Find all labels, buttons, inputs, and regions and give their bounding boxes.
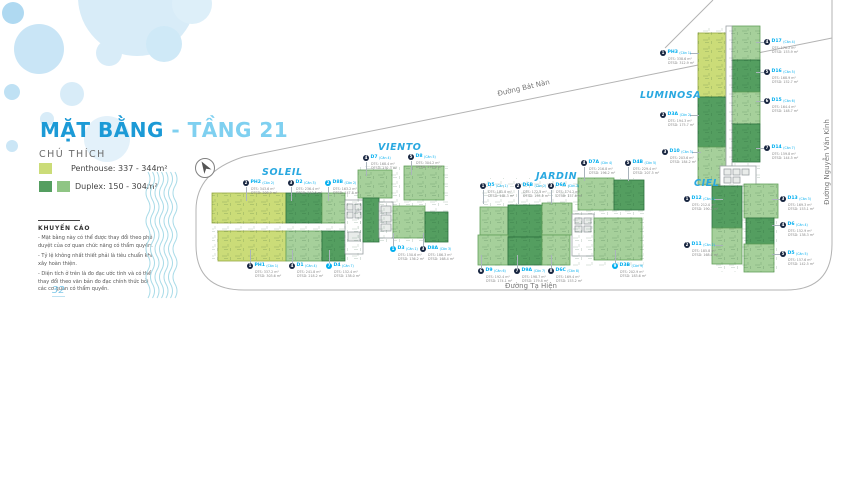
unit-label-soleil-d4: 7D4(Căn 7)DTS: 152.4 m²DTSD: 138.0 m² — [326, 263, 366, 279]
unit-area-net: DTSD: 207.5 m² — [633, 171, 665, 175]
unit-area-net: DTSD: 138.0 m² — [334, 274, 366, 278]
street-label-nguyen-van-kinh: Đường Nguyễn Văn Kỉnh — [823, 102, 831, 222]
unit-number-badge: 4 — [581, 160, 587, 166]
unit-variant: (Căn 7) — [342, 264, 354, 268]
unit-area-net: DTSD: 144.5 m² — [772, 156, 804, 160]
unit-label-soleil-ph1: 1PH1(Căn 1)DTS: 337.2 m²DTSD: 303.6 m² — [247, 263, 287, 279]
unit-code: D12 — [692, 196, 702, 202]
unit-variant: (Căn 3) — [681, 150, 693, 154]
unit-variant: (Căn 9) — [632, 264, 644, 268]
unit-code: D11 — [692, 242, 702, 248]
unit-number-badge: 7 — [514, 268, 520, 274]
unit-area-net: DTSD: 303.6 m² — [255, 274, 287, 278]
unit-code: PH1 — [255, 263, 265, 269]
unit-label-luminosa-d14: 7D14(Căn 7)DTS: 159.8 m²DTSD: 144.5 m² — [764, 145, 804, 161]
brochure-page: MẶT BẰNG - TẦNG 21 CHÚ THÍCH Penthouse: … — [0, 0, 850, 500]
unit-variant: (Căn 7) — [534, 269, 546, 273]
unit-variant: (Căn 3) — [799, 197, 811, 201]
unit-code: D6C — [556, 268, 566, 274]
unit-number-badge: 5 — [408, 154, 414, 160]
unit-variant: (Căn 6) — [783, 99, 795, 103]
unit-code: D7A — [589, 160, 600, 166]
unit-number-badge: 2 — [515, 183, 521, 189]
unit-label-soleil-ph2: 2PH2(Căn 2)DTS: 343.6 m²DTSD: 308.9 m² — [243, 180, 283, 196]
unit-area-net: DTSD: 153.2 m² — [556, 279, 588, 283]
unit-number-badge: 2 — [684, 242, 690, 248]
unit-number-badge: 7 — [764, 145, 770, 151]
unit-area-net: DTSD: 153.9 m² — [772, 50, 804, 54]
unit-label-luminosa-ph3: 1PH3(Căn 1)DTS: 338.6 m²DTSD: 312.9 m² — [660, 50, 700, 66]
unit-number-badge: 4 — [764, 39, 770, 45]
unit-code: D9A — [522, 268, 533, 274]
unit-number-badge: 1 — [247, 263, 253, 269]
unit-number-badge: 9 — [612, 263, 618, 269]
unit-label-viento-d8a: 3D8A(Căn 3)DTS: 186.3 m²DTSD: 168.4 m² — [420, 246, 460, 262]
unit-number-badge: 7 — [326, 263, 332, 269]
unit-label-jardin-d6c: 8D6C(Căn 8)DTS: 169.4 m²DTSD: 153.2 m² — [548, 268, 588, 284]
unit-label-ciel-d13: 3D13(Căn 3)DTS: 169.3 m²DTSD: 153.1 m² — [780, 196, 820, 212]
unit-number-badge: 4 — [363, 155, 369, 161]
unit-label-jardin-d5: 1D5(Căn 1)DTS: 181.8 m²DTSD: 164.3 m² — [480, 183, 520, 199]
unit-area-net: DTSD: 190.3 m² — [692, 207, 724, 211]
unit-code: D6A — [556, 183, 567, 189]
unit-area-net: DTSD: 183.6 m² — [620, 274, 652, 278]
unit-label-luminosa-d3a: 2D3A(Căn 2)DTS: 194.3 m²DTSD: 175.7 m² — [660, 112, 700, 128]
unit-label-jardin-d4b: 5D4B(Căn 5)DTS: 229.4 m²DTSD: 207.5 m² — [625, 160, 665, 176]
unit-label-jardin-d9: 6D9(Căn 6)DTS: 192.4 m²DTSD: 174.1 m² — [478, 268, 518, 284]
unit-number-badge: 4 — [289, 263, 295, 269]
unit-number-badge: 2 — [660, 112, 666, 118]
unit-code: D16 — [772, 69, 782, 75]
tower-name-viento: VIENTO — [378, 142, 421, 153]
unit-number-badge: 6 — [478, 268, 484, 274]
unit-code: D8A — [428, 246, 439, 252]
unit-variant: (Căn 1) — [406, 247, 418, 251]
tower-luminosa-plan — [698, 26, 760, 186]
unit-label-viento-d8: 5D8(Căn 5)DTS: 304.2 m²DTSD: 274.6 m² — [408, 154, 448, 170]
unit-code: D4 — [334, 263, 341, 269]
unit-area-net: DTSD: 147.8 m² — [333, 191, 365, 195]
north-arrow-icon — [196, 159, 215, 178]
unit-code: D13 — [788, 196, 798, 202]
unit-variant: (Căn 2) — [262, 181, 274, 185]
unit-area-net: DTSD: 308.9 m² — [251, 191, 283, 195]
unit-label-ciel-d5: 5D5(Căn 5)DTS: 157.6 m²DTSD: 142.5 m² — [780, 251, 820, 267]
unit-number-badge: 3 — [288, 180, 294, 186]
unit-area-net: DTSD: 213.5 m² — [296, 191, 328, 195]
unit-variant: (Căn 3) — [568, 184, 580, 188]
unit-label-luminosa-d10: 3D10(Căn 3)DTS: 203.6 m²DTSD: 184.2 m² — [662, 149, 702, 165]
unit-area-net: DTSD: 184.2 m² — [670, 160, 702, 164]
unit-variant: (Căn 2) — [680, 113, 692, 117]
unit-area-net: DTSD: 312.9 m² — [668, 61, 700, 65]
unit-code: D7 — [371, 155, 378, 161]
unit-variant: (Căn 2) — [345, 181, 357, 185]
unit-number-badge: 1 — [480, 183, 486, 189]
unit-variant: (Căn 8) — [567, 269, 579, 273]
unit-area-net: DTSD: 168.4 m² — [428, 257, 460, 261]
unit-variant: (Căn 4) — [601, 161, 613, 165]
unit-area-net: DTSD: 142.5 m² — [788, 262, 820, 266]
unit-label-viento-d8b: 2D8B(Căn 2)DTS: 163.2 m²DTSD: 147.8 m² — [325, 180, 365, 196]
unit-number-badge: 5 — [764, 69, 770, 75]
unit-label-luminosa-d15: 6D15(Căn 6)DTS: 164.4 m²DTSD: 148.7 m² — [764, 98, 804, 114]
unit-variant: (Căn 5) — [424, 155, 436, 159]
unit-area-net: DTSD: 196.2 m² — [589, 171, 621, 175]
unit-variant: (Căn 5) — [645, 161, 657, 165]
unit-number-badge: 3 — [420, 246, 426, 252]
unit-variant: (Căn 4) — [305, 264, 317, 268]
unit-label-soleil-d1: 4D1(Căn 4)DTS: 241.8 m²DTSD: 218.2 m² — [289, 263, 329, 279]
unit-area-net: DTSD: 157.6 m² — [556, 194, 588, 198]
unit-number-badge: 3 — [780, 196, 786, 202]
unit-number-badge: 1 — [660, 50, 666, 56]
tower-name-ciel: CIEL — [694, 178, 719, 189]
unit-label-jardin-d3b: 9D3B(Căn 9)DTS: 202.9 m²DTSD: 183.6 m² — [612, 263, 652, 279]
unit-area-net: DTSD: 152.7 m² — [772, 80, 804, 84]
unit-code: D3A — [668, 112, 679, 118]
unit-variant: (Căn 4) — [796, 223, 808, 227]
unit-label-jardin-d6a: 3D6A(Căn 3)DTS: 174.2 m²DTSD: 157.6 m² — [548, 183, 588, 199]
unit-area-net: DTSD: 148.7 m² — [772, 109, 804, 113]
unit-area-net: DTSD: 274.6 m² — [416, 165, 448, 169]
unit-variant: (Căn 5) — [783, 70, 795, 74]
unit-code: PH2 — [251, 180, 261, 186]
unit-variant: (Căn 1) — [679, 51, 691, 55]
unit-code: D1 — [297, 263, 304, 269]
unit-number-badge: 5 — [625, 160, 631, 166]
unit-variant: (Căn 1) — [266, 264, 278, 268]
unit-label-luminosa-d16: 5D16(Căn 5)DTS: 168.9 m²DTSD: 152.7 m² — [764, 69, 804, 85]
unit-code: D6 — [788, 222, 795, 228]
unit-number-badge: 5 — [780, 251, 786, 257]
unit-code: D8 — [416, 154, 423, 160]
unit-area-net: DTSD: 218.2 m² — [297, 274, 329, 278]
unit-number-badge: 2 — [325, 180, 331, 186]
unit-variant: (Căn 4) — [783, 40, 795, 44]
tower-name-jardin: JARDIN — [536, 171, 577, 182]
tower-viento-plan — [358, 166, 448, 242]
unit-code: D6B — [523, 183, 534, 189]
unit-area-net: DTSD: 153.1 m² — [788, 207, 820, 211]
unit-code: D5 — [788, 251, 795, 257]
tower-name-soleil: SOLEIL — [262, 167, 303, 178]
unit-code: PH3 — [668, 50, 678, 56]
unit-variant: (Căn 2) — [703, 243, 715, 247]
unit-code: D5 — [488, 183, 495, 189]
unit-code: D2 — [296, 180, 303, 186]
unit-number-badge: 3 — [548, 183, 554, 189]
unit-number-badge: 2 — [243, 180, 249, 186]
unit-area-net: DTSD: 152.3 m² — [371, 166, 403, 170]
unit-label-ciel-d11: 2D11(Căn 2)DTS: 185.8 m²DTSD: 168.0 m² — [684, 242, 724, 258]
unit-code: D10 — [670, 149, 680, 155]
unit-variant: (Căn 4) — [379, 156, 391, 160]
unit-label-luminosa-d17: 4D17(Căn 4)DTS: 170.2 m²DTSD: 153.9 m² — [764, 39, 804, 55]
unit-area-net: DTSD: 138.3 m² — [788, 233, 820, 237]
unit-number-badge: 4 — [780, 222, 786, 228]
unit-variant: (Căn 2) — [535, 184, 547, 188]
unit-area-net: DTSD: 175.7 m² — [668, 123, 700, 127]
unit-number-badge: 1 — [390, 246, 396, 252]
unit-variant: (Căn 1) — [703, 197, 715, 201]
river-waves-icon — [146, 172, 177, 298]
tower-soleil-plan — [212, 193, 365, 261]
unit-label-ciel-d6: 4D6(Căn 4)DTS: 152.9 m²DTSD: 138.3 m² — [780, 222, 820, 238]
unit-code: D3B — [620, 263, 631, 269]
unit-code: D9 — [486, 268, 493, 274]
unit-code: D3 — [398, 246, 405, 252]
unit-label-soleil-d2: 3D2(Căn 3)DTS: 236.4 m²DTSD: 213.5 m² — [288, 180, 328, 196]
unit-label-viento-d7: 4D7(Căn 4)DTS: 168.4 m²DTSD: 152.3 m² — [363, 155, 403, 171]
unit-variant: (Căn 1) — [496, 184, 508, 188]
unit-variant: (Căn 5) — [796, 252, 808, 256]
unit-number-badge: 8 — [548, 268, 554, 274]
unit-code: D14 — [772, 145, 782, 151]
unit-variant: (Căn 6) — [494, 269, 506, 273]
unit-variant: (Căn 3) — [304, 181, 316, 185]
unit-code: D8B — [333, 180, 344, 186]
unit-code: D17 — [772, 39, 782, 45]
unit-number-badge: 3 — [662, 149, 668, 155]
unit-label-jardin-d7a: 4D7A(Căn 4)DTS: 216.8 m²DTSD: 196.2 m² — [581, 160, 621, 176]
unit-area-net: DTSD: 168.0 m² — [692, 253, 724, 257]
unit-number-badge: 6 — [764, 98, 770, 104]
unit-number-badge: 1 — [684, 196, 690, 202]
tower-name-luminosa: LUMINOSA — [640, 90, 701, 101]
unit-label-ciel-d12: 1D12(Căn 1)DTS: 212.0 m²DTSD: 190.3 m² — [684, 196, 724, 212]
unit-code: D4B — [633, 160, 644, 166]
unit-variant: (Căn 3) — [440, 247, 452, 251]
unit-variant: (Căn 7) — [783, 146, 795, 150]
unit-code: D15 — [772, 98, 782, 104]
